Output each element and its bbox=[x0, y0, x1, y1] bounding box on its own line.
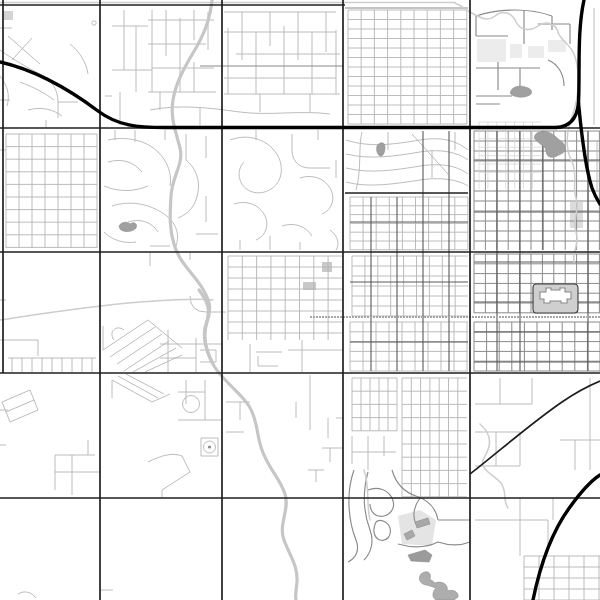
map-view bbox=[0, 0, 600, 600]
map-canvas[interactable] bbox=[0, 0, 600, 600]
parking-grid-layer bbox=[479, 122, 541, 189]
capitol-block-layer bbox=[533, 284, 578, 313]
downtown-grids-layer bbox=[474, 131, 600, 371]
stream-layer bbox=[0, 3, 578, 521]
street-grids-layer bbox=[6, 10, 600, 600]
